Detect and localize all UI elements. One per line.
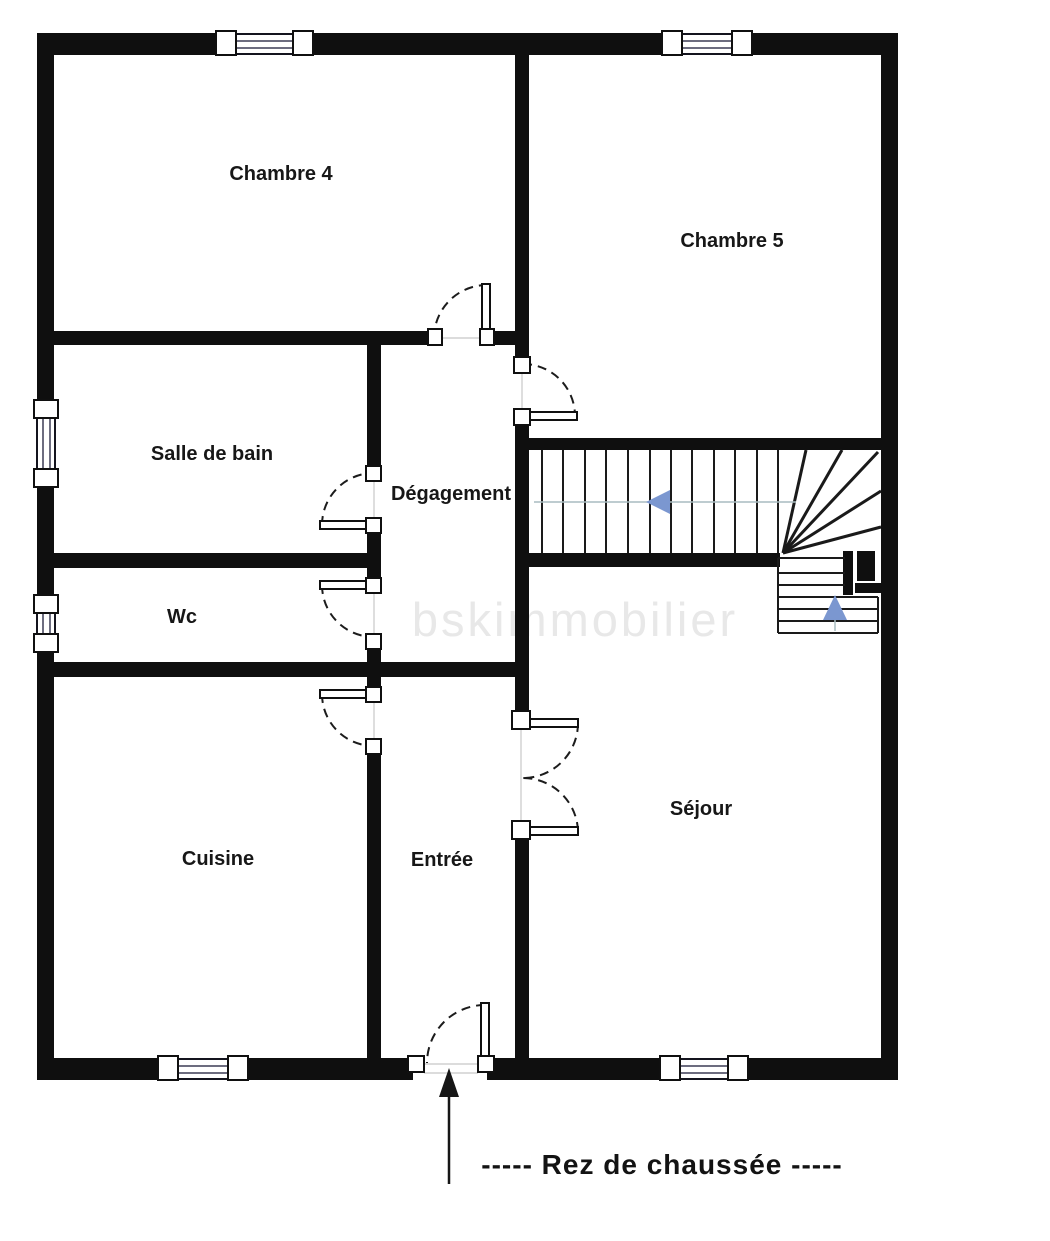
door-cuisine xyxy=(320,687,381,754)
stair-winder-fan xyxy=(783,450,881,553)
window-sejour-bottom xyxy=(660,1056,748,1080)
room-label-wc: Wc xyxy=(167,606,197,628)
floor-plan-page: bskimmobilier xyxy=(0,0,1050,1241)
window-chambre5-top xyxy=(662,31,752,55)
entrance-arrow-icon xyxy=(439,1068,459,1184)
door-entrance xyxy=(408,1003,494,1073)
window-salle-de-bain-left xyxy=(34,400,58,487)
floor-plan-drawing: bskimmobilier xyxy=(0,0,1050,1241)
room-label-degagement: Dégagement xyxy=(391,483,511,505)
doors xyxy=(320,284,578,1073)
room-label-chambre5: Chambre 5 xyxy=(680,230,783,252)
door-wc xyxy=(320,578,381,649)
interior-walls xyxy=(54,55,881,1058)
door-chambre4 xyxy=(428,284,494,345)
room-label-sejour: Séjour xyxy=(670,798,732,820)
watermark-text: bskimmobilier xyxy=(412,593,738,646)
room-labels: Chambre 4 Chambre 5 Salle de bain Dégage… xyxy=(151,163,784,871)
room-label-chambre4: Chambre 4 xyxy=(229,163,333,185)
room-label-cuisine: Cuisine xyxy=(182,848,254,870)
floor-caption: ----- Rez de chaussée ----- xyxy=(481,1149,842,1180)
door-double-sejour xyxy=(512,711,578,839)
room-label-entree: Entrée xyxy=(411,849,473,871)
door-chambre5 xyxy=(514,357,577,425)
stair-direction-arrow-up-icon xyxy=(823,595,847,620)
room-label-salle-de-bain: Salle de bain xyxy=(151,443,273,465)
door-salle-de-bain xyxy=(320,466,381,533)
window-wc-left xyxy=(34,595,58,652)
window-cuisine-bottom xyxy=(158,1056,248,1080)
window-chambre4-top xyxy=(216,31,313,55)
